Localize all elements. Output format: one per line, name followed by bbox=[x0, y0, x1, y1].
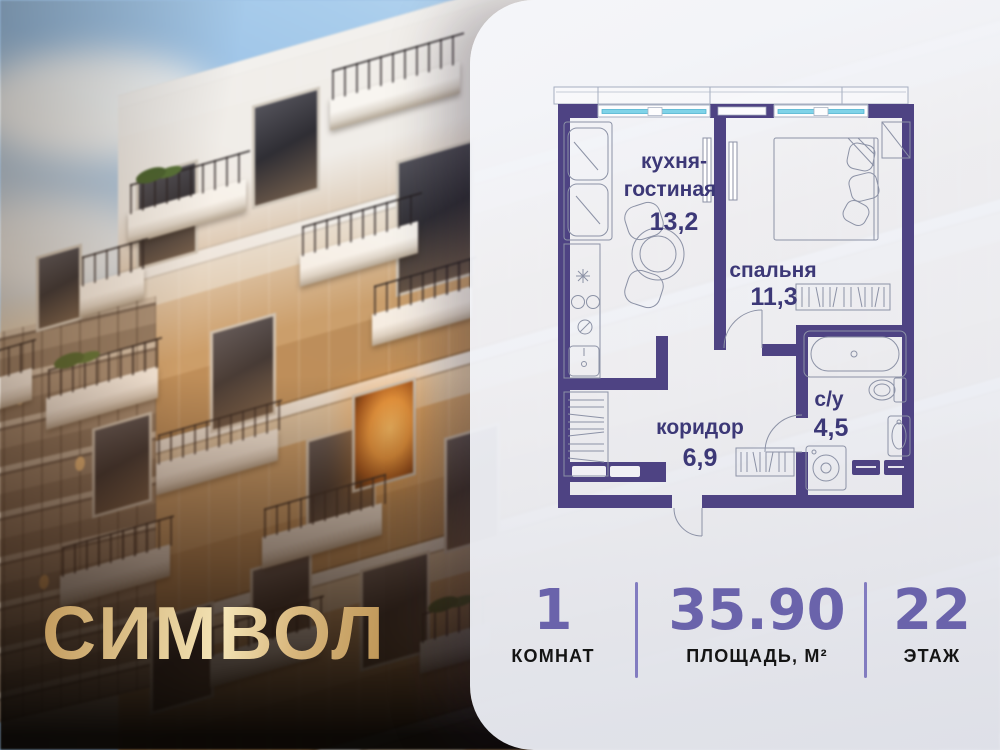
stat-floor: 22 ЭТАЖ bbox=[874, 584, 990, 667]
stat-floor-label: ЭТАЖ bbox=[874, 646, 990, 667]
room-area-kitchen: 13,2 bbox=[650, 208, 699, 236]
room-name-bathroom: с/у bbox=[814, 388, 844, 411]
room-area-bedroom: 11,3 bbox=[750, 283, 797, 311]
room-name-kitchen-1: кухня- bbox=[641, 150, 707, 173]
room-name-kitchen-2: гостиная bbox=[624, 178, 717, 201]
room-area-bathroom: 4,5 bbox=[814, 414, 849, 442]
bathtub-icon bbox=[804, 331, 906, 377]
toilet-icon bbox=[869, 378, 906, 402]
floor-plan: кухня- гостиная 13,2 спальня 11,3 коридо… bbox=[552, 84, 920, 544]
stat-divider bbox=[864, 582, 867, 678]
stat-area: 35.90 ПЛОЩАДЬ, М² bbox=[650, 584, 864, 667]
room-name-corridor: коридор bbox=[656, 416, 744, 439]
stat-area-value: 35.90 bbox=[650, 584, 864, 637]
stat-floor-value: 22 bbox=[874, 584, 990, 637]
stat-rooms-label: КОМНАТ bbox=[478, 646, 628, 667]
stat-area-label: ПЛОЩАДЬ, М² bbox=[650, 646, 864, 667]
bedroom-wardrobe-icon bbox=[796, 284, 890, 310]
sofa-icon bbox=[564, 122, 612, 240]
listing-banner: СИМВОЛ bbox=[0, 0, 1000, 750]
room-name-bedroom: спальня bbox=[729, 259, 816, 282]
stat-divider bbox=[635, 582, 638, 678]
stat-rooms-value: 1 bbox=[478, 584, 628, 637]
room-area-corridor: 6,9 bbox=[683, 444, 718, 472]
bed-icon bbox=[774, 138, 881, 240]
washer-icon bbox=[806, 446, 846, 490]
balcony-outline bbox=[554, 87, 908, 104]
stat-rooms: 1 КОМНАТ bbox=[478, 584, 628, 667]
brand-logo: СИМВОЛ bbox=[42, 596, 386, 671]
